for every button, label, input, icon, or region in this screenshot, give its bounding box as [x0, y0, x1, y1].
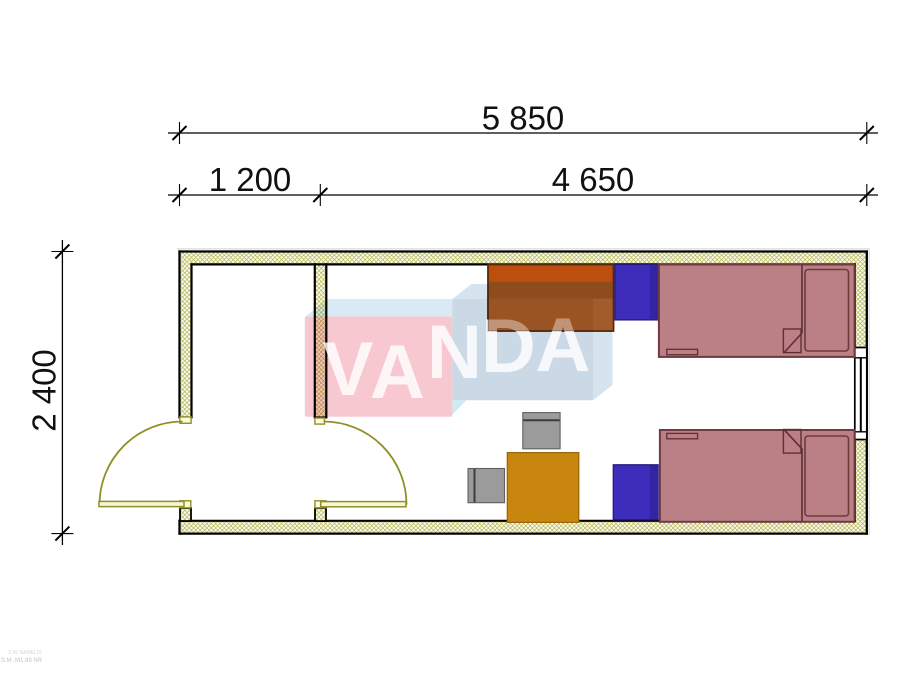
svg-text:V: V: [323, 327, 374, 412]
svg-text:2 400: 2 400: [26, 349, 63, 432]
svg-text:N: N: [427, 310, 482, 395]
svg-text:5 850: 5 850: [482, 100, 565, 137]
svg-text:S.M. NAMELIS: S.M. NAMELIS: [8, 650, 42, 656]
svg-text:1 200: 1 200: [209, 161, 292, 198]
svg-text:S.M. M1.99 NR: S.M. M1.99 NR: [1, 658, 43, 664]
svg-text:4 650: 4 650: [552, 161, 635, 198]
svg-text:A: A: [370, 330, 425, 415]
